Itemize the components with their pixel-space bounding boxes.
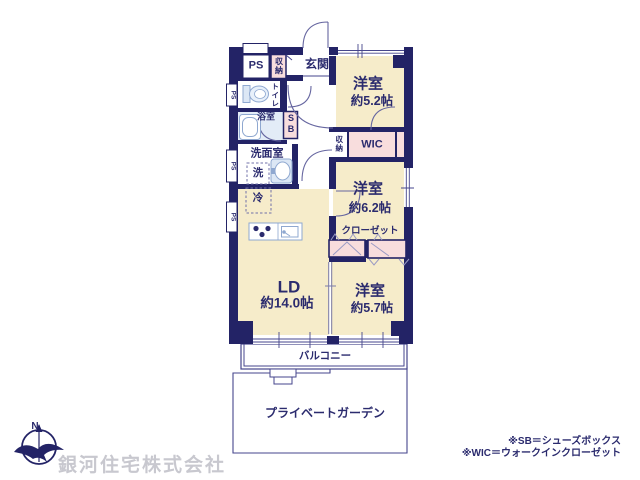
bedroom3-name: 洋室 <box>355 284 385 299</box>
washbasin-icon <box>271 159 292 183</box>
bedroom2-size: 約6.2帖 <box>349 202 391 215</box>
compass-n-label: N <box>31 422 38 432</box>
toilet-door-arc <box>288 86 311 107</box>
wic-label: WIC <box>361 140 382 151</box>
bedroom3-size: 約5.7帖 <box>351 302 393 315</box>
side-ps-label-1: PS <box>229 91 236 100</box>
kitchen-counter-icon <box>249 223 302 240</box>
side-ps-label-3: PS <box>229 213 236 222</box>
shoe-box-label: SB <box>286 113 295 135</box>
ps-label: PS <box>249 61 264 72</box>
genkan-label: 玄関 <box>305 58 329 70</box>
note-wic: ※WIC＝ウォークインクローゼット <box>462 449 621 459</box>
bedroom2-name: 洋室 <box>353 182 383 197</box>
living-dining-floor <box>238 189 329 335</box>
meter-box <box>243 44 268 54</box>
entry-storage-door-mark <box>286 55 292 60</box>
company-watermark: 銀河住宅株式会社 <box>58 450 226 477</box>
washroom-label: 洗面室 <box>251 149 284 160</box>
hall-storage-label: 収納 <box>335 136 343 153</box>
balcony-label: バルコニー <box>299 351 351 362</box>
garden-label: プライベートガーデン <box>265 407 385 419</box>
garden-step-lower <box>274 377 292 384</box>
washer-label: 洗 <box>253 168 264 179</box>
closet-label: クローゼット <box>341 226 398 236</box>
side-ps-label-2: PS <box>229 162 236 171</box>
living-dining-name: LD <box>278 279 301 296</box>
bath-label: 浴室 <box>257 113 275 122</box>
fridge-label: 冷 <box>253 193 264 204</box>
note-sb: ※SB＝シューズボックス <box>508 437 621 447</box>
toilet-label: トイレ <box>271 82 279 108</box>
entrance-door-arc <box>303 22 328 48</box>
bedroom1-name: 洋室 <box>353 77 383 92</box>
garden-step-upper <box>270 369 296 377</box>
floorplan-page: PS 収納 玄関 洋室 約5.2帖 トイレ 浴室 SB 洗面室 洗 PS PS … <box>0 0 640 480</box>
compass-logo <box>14 424 64 464</box>
closet-box-right <box>368 240 406 258</box>
living-dining-size: 約14.0帖 <box>260 296 313 310</box>
living-door-arc <box>302 150 332 181</box>
entry-storage-label: 収納 <box>275 57 283 75</box>
toilet-icon <box>243 86 269 103</box>
bedroom1-size: 約5.2帖 <box>351 95 393 108</box>
